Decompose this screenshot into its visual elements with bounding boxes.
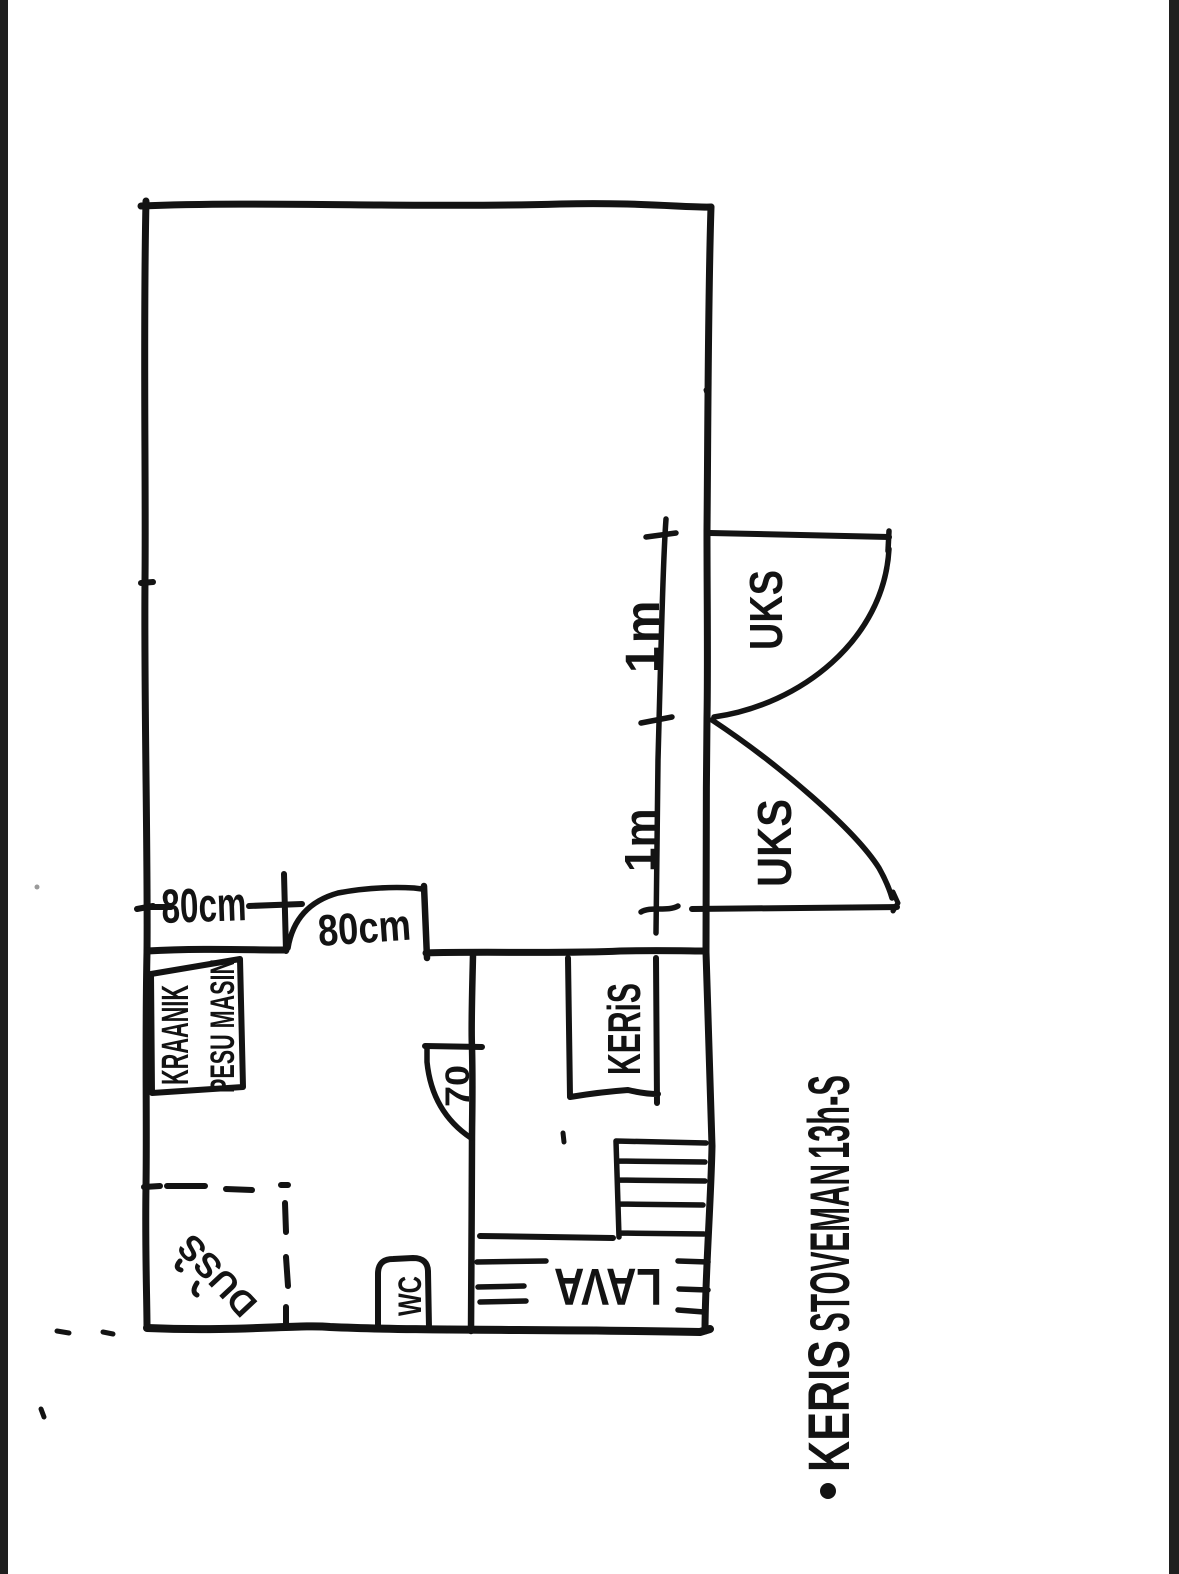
svg-text:80cm: 80cm <box>161 878 248 934</box>
svg-text:1m: 1m <box>616 808 665 872</box>
svg-text:PESU MASIN: PESU MASIN <box>204 959 242 1093</box>
svg-text:KRAANIK: KRAANIK <box>155 985 197 1085</box>
svg-text:UKS: UKS <box>740 570 792 650</box>
svg-text:1m: 1m <box>617 598 670 673</box>
svg-text:UKS: UKS <box>749 799 802 887</box>
svg-text:70: 70 <box>439 1065 477 1107</box>
svg-text:13h-S: 13h-S <box>797 1075 862 1159</box>
svg-text:80cm: 80cm <box>316 901 412 956</box>
svg-text:KERiS: KERiS <box>598 983 650 1075</box>
svg-text:LAVA: LAVA <box>554 1257 662 1315</box>
svg-text:WC: WC <box>392 1276 428 1316</box>
svg-text:STOVEMAN: STOVEMAN <box>798 1164 861 1332</box>
svg-text:KERIS: KERIS <box>797 1340 862 1472</box>
